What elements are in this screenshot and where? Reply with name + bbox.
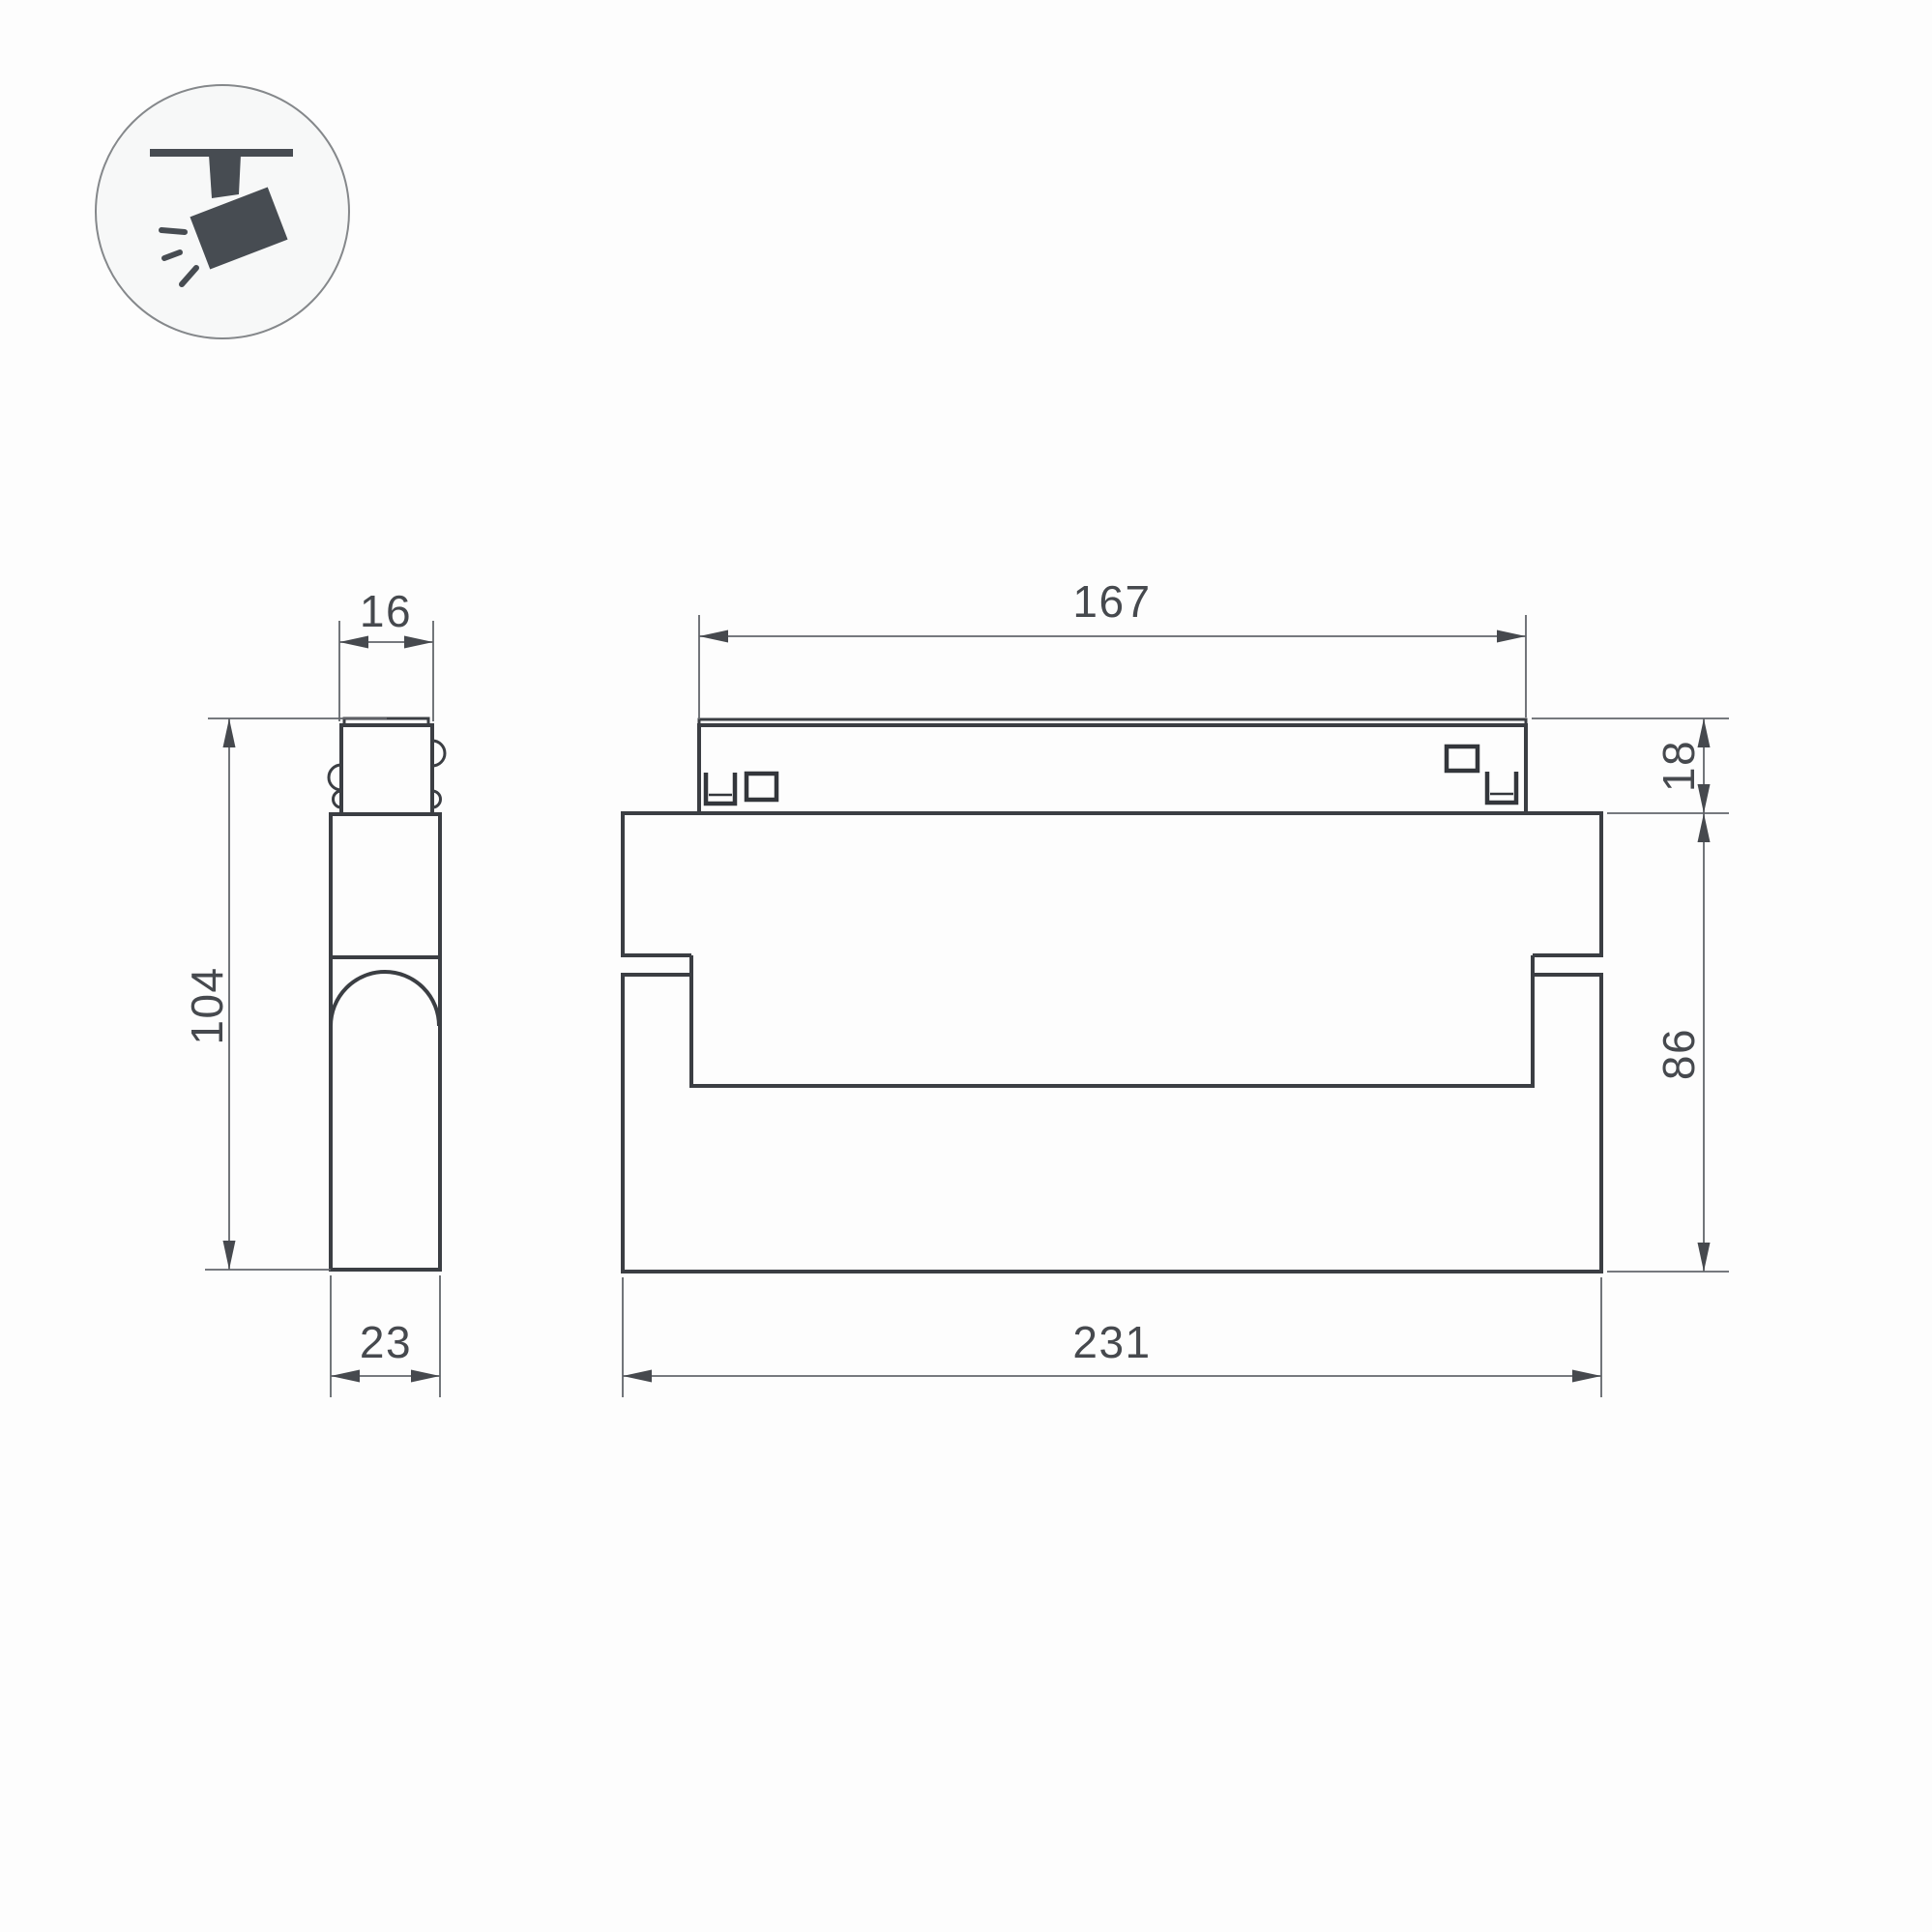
front-upper-housing [623, 813, 1601, 955]
front-lamp-panel [691, 955, 1533, 1086]
dimension-drawing: 16 104 23 167 18 [0, 0, 1932, 1932]
front-lower-housing [623, 975, 1601, 1272]
icon-mount-stem [209, 155, 241, 198]
track-spotlight-icon [96, 85, 349, 338]
dim-label-231: 231 [1072, 1317, 1151, 1367]
side-body [331, 814, 440, 1270]
arrow-right [1572, 1370, 1601, 1383]
dimension-side-top-width: 16 [339, 586, 433, 721]
front-left-u-clip [706, 773, 735, 804]
drawing-canvas: 16 104 23 167 18 [0, 0, 1932, 1932]
arrow-right [411, 1370, 440, 1383]
front-view [623, 719, 1601, 1272]
front-right-contact-block [1447, 746, 1478, 771]
side-view [329, 718, 445, 1270]
dimension-front-adapter-height: 18 [1532, 718, 1729, 813]
dim-label-23: 23 [360, 1317, 412, 1367]
dim-label-18: 18 [1654, 740, 1704, 792]
dim-label-167: 167 [1072, 576, 1151, 627]
arrow-left [699, 630, 728, 643]
arrow-down [1698, 1243, 1711, 1272]
arrow-right [404, 636, 433, 649]
dimension-side-height: 104 [182, 718, 387, 1270]
arrow-up [223, 718, 236, 747]
dimension-front-body-height: 86 [1607, 813, 1729, 1272]
front-adapter-body [699, 725, 1526, 813]
arrow-down [223, 1241, 236, 1270]
arrow-left [339, 636, 368, 649]
arrow-right [1497, 630, 1526, 643]
dimension-side-depth: 23 [331, 1275, 440, 1397]
arrow-up [1698, 813, 1711, 842]
side-hinge-arch [331, 972, 439, 1026]
dim-label-16: 16 [360, 586, 412, 636]
front-left-contact-block [746, 774, 776, 800]
side-adapter-body [341, 725, 432, 814]
dimension-front-body-width: 231 [623, 1277, 1601, 1397]
dimension-front-track-length: 167 [699, 576, 1526, 719]
arrow-left [623, 1370, 652, 1383]
arrow-left [331, 1370, 360, 1383]
dim-label-86: 86 [1654, 1028, 1704, 1080]
dim-label-104: 104 [182, 966, 232, 1044]
front-right-u-clip [1487, 772, 1516, 803]
